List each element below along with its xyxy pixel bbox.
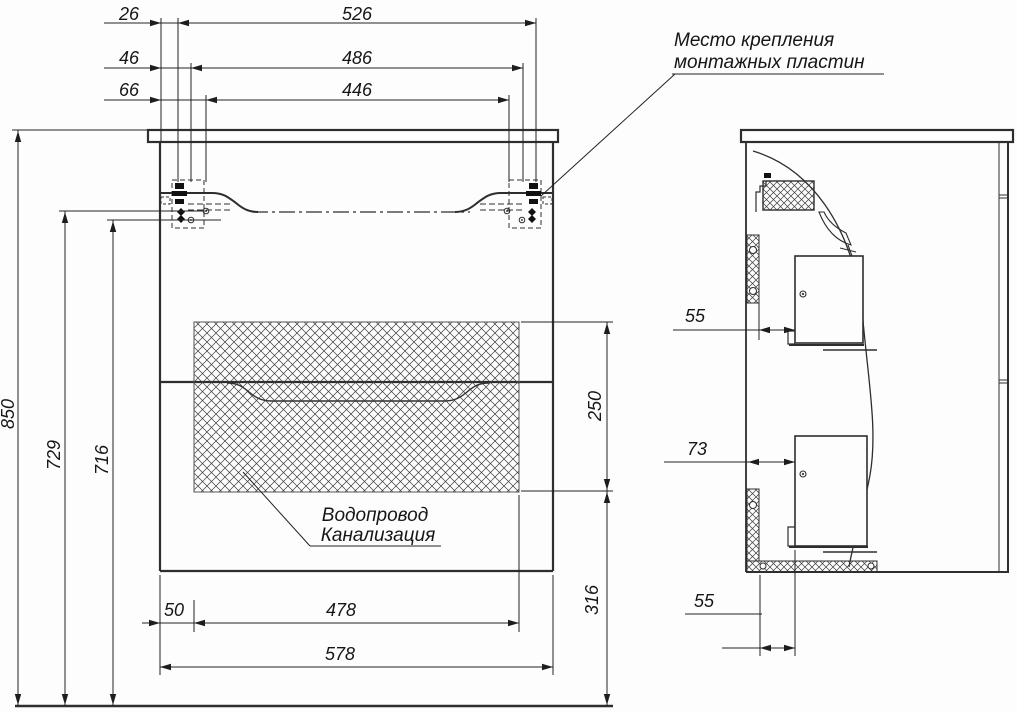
dim-total-width-label: 578 <box>325 644 355 664</box>
dim-opening-bottom-label: 316 <box>582 584 602 615</box>
dim-opening-height-label: 250 <box>585 391 605 422</box>
dim-span1-label: 526 <box>342 4 373 24</box>
mounting-plate-left <box>161 180 233 228</box>
service-opening-hatch <box>194 322 519 492</box>
front-basin-outline <box>160 193 553 212</box>
dim-side-offset-label: 50 <box>164 600 184 620</box>
side-drawer-box-upper <box>788 256 877 350</box>
side-mounting-strip-upper <box>747 235 759 303</box>
dim-depth-mid-label: 73 <box>687 439 707 459</box>
plumbing-note-line1: Водопровод <box>322 505 428 526</box>
dim-depth-top-label: 55 <box>685 306 706 326</box>
side-countertop <box>741 130 1013 142</box>
dim-lower-hole-height-label: 716 <box>92 444 112 475</box>
dim-upper-hole-height-label: 729 <box>44 440 64 470</box>
dim-span2-label: 486 <box>342 48 373 68</box>
mounting-plate-right <box>480 180 552 228</box>
dim-total-height-label: 850 <box>0 399 18 429</box>
side-mounting-strip-lower <box>747 489 759 561</box>
mounting-plates-note-line2: монтажных пластин <box>674 52 865 73</box>
vanity-installation-drawing: 26 526 46 486 66 446 850 729 716 250 316… <box>0 0 1017 713</box>
plumbing-note-line2: Канализация <box>321 525 436 546</box>
dim-offset2-label: 46 <box>119 48 140 68</box>
side-bottom-strip <box>747 561 877 572</box>
dim-offset3-label: 66 <box>119 80 140 100</box>
dim-depth-bottom-label: 55 <box>694 591 715 611</box>
mounting-plates-note-line1: Место крепления <box>674 30 834 51</box>
front-view <box>15 130 613 706</box>
dim-offset1-label: 26 <box>118 4 140 24</box>
dim-opening-width-label: 478 <box>326 600 356 620</box>
technical-drawing-sheet: 26 526 46 486 66 446 850 729 716 250 316… <box>0 0 1017 713</box>
front-countertop <box>148 130 558 142</box>
side-mounting-plate-top <box>763 181 814 210</box>
side-drawer-box-lower <box>788 436 877 552</box>
dim-span3-label: 446 <box>342 80 373 100</box>
side-view <box>741 130 1013 572</box>
